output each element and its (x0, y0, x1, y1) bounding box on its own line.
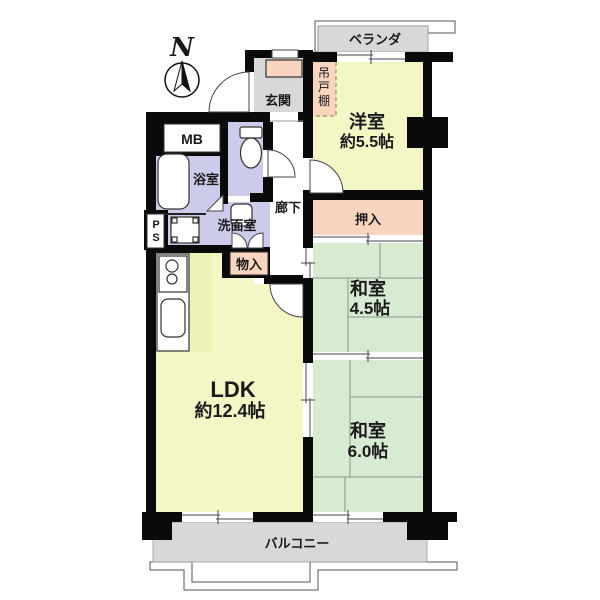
stove-burner (166, 260, 178, 272)
toilet-door-swing (268, 150, 295, 177)
pipe-space-char: S (152, 232, 159, 244)
japanese45-label: 和室 4.5帖 (350, 278, 391, 318)
floorplan-page: N ベランダ バルコニー 玄関 廊下 MB 浴室 洗面室 押入 物入 P S 吊… (0, 0, 600, 600)
ldk-size: 約12.4帖 (194, 400, 265, 421)
washroom-label: 洗面室 (217, 218, 256, 233)
wall-toilet-right-upper (263, 122, 273, 150)
western-room-name: 洋室 (349, 111, 385, 132)
pillar-bottom-right (407, 522, 448, 540)
sliding-door-ldk-japanese60 (301, 363, 315, 437)
balcony-label: バルコニー (265, 536, 330, 551)
stove (159, 256, 187, 292)
entrance-label: 玄関 (265, 93, 291, 108)
floorplan-drawing: N ベランダ バルコニー 玄関 廊下 MB 浴室 洗面室 押入 物入 P S 吊… (0, 0, 600, 600)
japanese60-size: 6.0帖 (348, 441, 389, 461)
window-japanese60-balcony (313, 510, 383, 524)
front-door-swing (209, 72, 249, 112)
veranda-label: ベランダ (349, 32, 401, 47)
japanese45-name: 和室 (350, 278, 386, 299)
storage-label: 物入 (236, 257, 262, 272)
hanging-cupboard-char: 戸 (318, 80, 330, 94)
wall-hall-east-a (303, 122, 313, 158)
north-letter: N (169, 33, 195, 63)
washer-pan-corner (172, 237, 177, 242)
compass: N (165, 33, 199, 97)
wall-left (146, 112, 156, 522)
pipe-space-label: P S (152, 219, 159, 244)
hanging-cupboard-char: 棚 (318, 93, 330, 108)
oshiire-label: 押入 (355, 212, 381, 227)
entrance-door-panel (272, 50, 298, 58)
wall-hall-bottom-header (264, 275, 304, 284)
sliding-door-hall-japanese45 (301, 248, 315, 278)
wall-hall-east-c (303, 278, 313, 363)
wall-toilet-left (220, 122, 228, 204)
window-western-veranda (337, 50, 405, 64)
wall-hall-east-d (303, 437, 313, 512)
toilet-bowl (241, 138, 262, 168)
wall-hall-east-b (303, 195, 313, 248)
washing-machine-pan (171, 217, 199, 243)
hallway-label: 廊下 (275, 200, 301, 215)
japanese60-label: 和室 6.0帖 (348, 420, 389, 461)
pillar-bottom-left (142, 512, 172, 540)
meter-box-label: MB (181, 131, 203, 147)
japanese60-name: 和室 (350, 420, 386, 441)
ldk-name: LDK (210, 377, 255, 402)
wall-toilet-bottom (250, 193, 273, 202)
hanging-cupboard-char: 吊 (318, 66, 330, 80)
kitchen-sink (161, 299, 185, 337)
bathtub (158, 154, 189, 209)
pillar-top-right (407, 117, 448, 148)
wall-entrance-bottom (228, 112, 270, 122)
balcony-railing (150, 562, 457, 590)
washer-pan-corner (193, 237, 198, 242)
hanging-cupboard-label: 吊 戸 棚 (318, 66, 330, 108)
western-room-size: 約5.5帖 (340, 132, 394, 151)
japanese45-size: 4.5帖 (350, 298, 391, 318)
bathroom-label: 浴室 (193, 172, 219, 187)
shoe-cabinet (266, 60, 302, 77)
pipe-space-char: P (152, 219, 159, 231)
washer-pan-corner (193, 218, 198, 223)
washer-pan-corner (172, 218, 177, 223)
kitchen-strip (188, 253, 212, 352)
stove-burner (167, 274, 177, 284)
window-ldk-balcony (182, 510, 253, 524)
toilet-tank (240, 127, 262, 138)
